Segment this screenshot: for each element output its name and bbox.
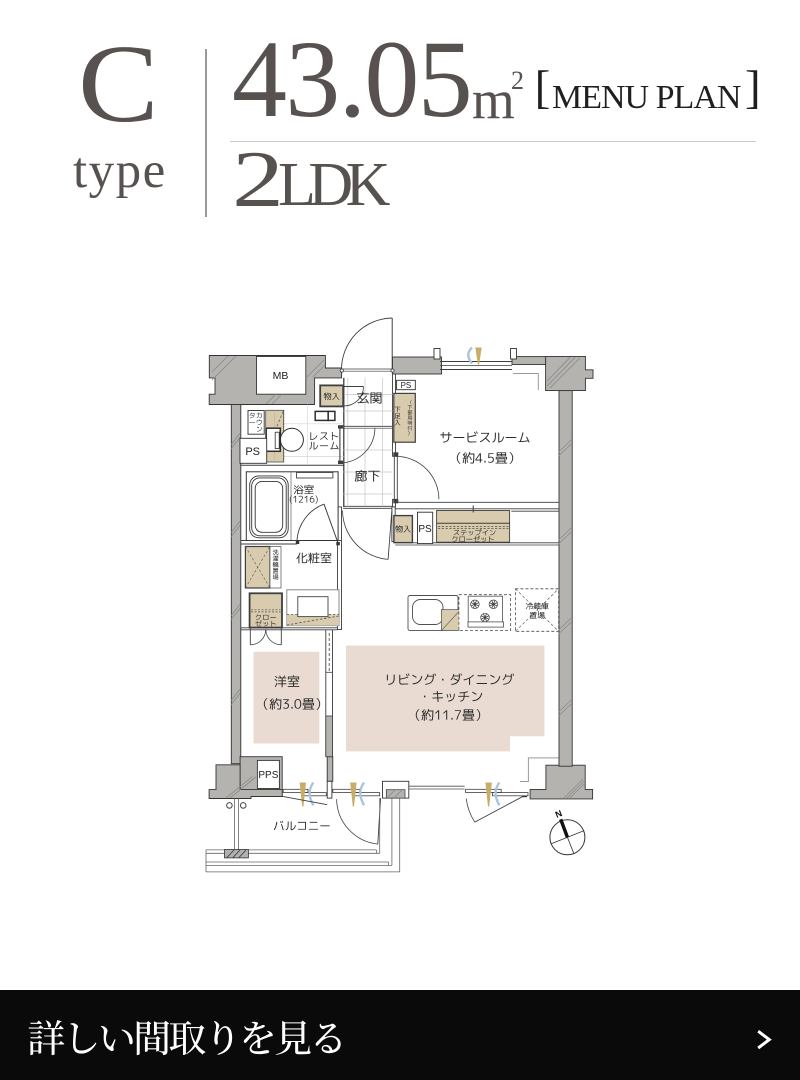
svg-text:N: N [554, 808, 564, 820]
svg-text:PPS: PPS [258, 770, 278, 781]
svg-text:PS: PS [245, 446, 260, 458]
svg-text:MB: MB [273, 370, 289, 382]
svg-text:PS: PS [401, 381, 412, 390]
svg-text:PS: PS [418, 524, 432, 535]
